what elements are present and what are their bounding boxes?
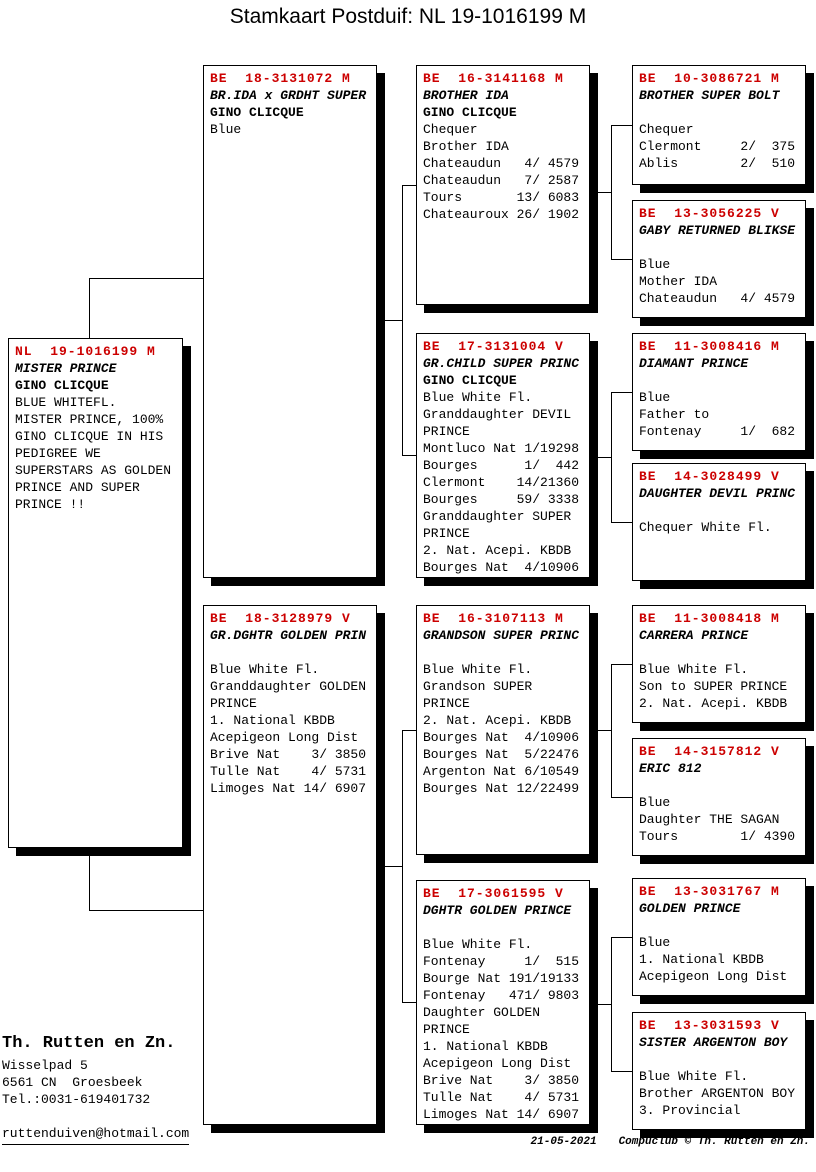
pedigree-box-grandparent[interactable]: BE 17-3061595 V DGHTR GOLDEN PRINCE Blue… bbox=[416, 880, 590, 1125]
ring-number: BE 18-3131072 M bbox=[210, 70, 370, 87]
pigeon-strain: GINO CLICQUE bbox=[423, 372, 583, 389]
ring-number: BE 11-3008416 M bbox=[639, 338, 799, 355]
pigeon-name: GOLDEN PRINCE bbox=[639, 900, 799, 917]
pedigree-box-greatgrandparent[interactable]: BE 14-3028499 V DAUGHTER DEVIL PRINC Che… bbox=[632, 463, 806, 581]
pigeon-details: Blue bbox=[210, 121, 370, 138]
connector-line bbox=[611, 797, 632, 798]
pedigree-box-grandparent[interactable]: BE 16-3141168 M BROTHER IDA GINO CLICQUE… bbox=[416, 65, 590, 305]
pedigree-box-grandparent[interactable]: BE 17-3131004 V GR.CHILD SUPER PRINC GIN… bbox=[416, 333, 590, 578]
connector-line bbox=[611, 664, 632, 665]
pedigree-box-father[interactable]: BE 18-3131072 M BR.IDA x GRDHT SUPER GIN… bbox=[203, 65, 377, 578]
pigeon-name: CARRERA PRINCE bbox=[639, 627, 799, 644]
pedigree-box-greatgrandparent[interactable]: BE 10-3086721 M BROTHER SUPER BOLT Chequ… bbox=[632, 65, 806, 185]
ring-number: BE 14-3028499 V bbox=[639, 468, 799, 485]
breeder-name: Th. Rutten en Zn. bbox=[2, 1033, 189, 1055]
connector-line bbox=[89, 278, 90, 338]
connector-line bbox=[611, 1071, 632, 1072]
pigeon-details: Blue White Fl. Grandson SUPER PRINCE 2. … bbox=[423, 661, 583, 797]
ring-number: BE 17-3131004 V bbox=[423, 338, 583, 355]
connector-line bbox=[611, 522, 632, 523]
footer: 21-05-2021 Compuclub © Th. Rutten en Zn. bbox=[531, 1136, 810, 1148]
pedigree-box-greatgrandparent[interactable]: BE 11-3008418 M CARRERA PRINCE Blue Whit… bbox=[632, 605, 806, 723]
pedigree-card: Stamkaart Postduif: NL 19-1016199 M NL 1… bbox=[0, 0, 816, 1172]
pigeon-details: Blue White Fl. Son to SUPER PRINCE 2. Na… bbox=[639, 661, 799, 712]
pigeon-name: GRANDSON SUPER PRINC bbox=[423, 627, 583, 644]
connector-line bbox=[611, 392, 632, 393]
page-title: Stamkaart Postduif: NL 19-1016199 M bbox=[0, 5, 816, 29]
pigeon-strain: GINO CLICQUE bbox=[423, 104, 583, 121]
pigeon-name: GABY RETURNED BLIKSE bbox=[639, 222, 799, 239]
connector-line bbox=[377, 320, 402, 321]
pigeon-name: DIAMANT PRINCE bbox=[639, 355, 799, 372]
pigeon-name: DAUGHTER DEVIL PRINC bbox=[639, 485, 799, 502]
ring-number: BE 13-3031593 V bbox=[639, 1017, 799, 1034]
connector-line bbox=[402, 185, 416, 186]
connector-line bbox=[611, 259, 632, 260]
pigeon-strain bbox=[639, 372, 799, 389]
pigeon-strain bbox=[639, 1051, 799, 1068]
ring-number: BE 13-3031767 M bbox=[639, 883, 799, 900]
pigeon-details: Blue Mother IDA Chateaudun 4/ 4579 bbox=[639, 256, 799, 307]
pigeon-strain bbox=[423, 644, 583, 661]
pigeon-name: GR.CHILD SUPER PRINC bbox=[423, 355, 583, 372]
ring-number: BE 18-3128979 V bbox=[210, 610, 370, 627]
print-date: 21-05-2021 bbox=[531, 1136, 597, 1148]
pigeon-name: GR.DGHTR GOLDEN PRIN bbox=[210, 627, 370, 644]
connector-line bbox=[590, 457, 611, 458]
pigeon-strain bbox=[639, 104, 799, 121]
breeder-address: Wisselpad 5 6561 CN Groesbeek Tel.:0031-… bbox=[2, 1057, 189, 1108]
pedigree-box-greatgrandparent[interactable]: BE 13-3056225 V GABY RETURNED BLIKSE Blu… bbox=[632, 200, 806, 318]
connector-line bbox=[402, 730, 416, 731]
breeder-info: Th. Rutten en Zn. Wisselpad 5 6561 CN Gr… bbox=[2, 1033, 189, 1145]
pigeon-strain bbox=[639, 777, 799, 794]
connector-line bbox=[611, 392, 612, 522]
pigeon-name: SISTER ARGENTON BOY bbox=[639, 1034, 799, 1051]
connector-line bbox=[590, 730, 611, 731]
ring-number: BE 13-3056225 V bbox=[639, 205, 799, 222]
connector-line bbox=[611, 937, 632, 938]
connector-line bbox=[590, 1004, 611, 1005]
pigeon-strain bbox=[423, 919, 583, 936]
connector-line bbox=[590, 192, 611, 193]
pigeon-details: Chequer White Fl. bbox=[639, 519, 799, 536]
connector-line bbox=[402, 1002, 416, 1003]
pigeon-details: Blue Daughter THE SAGAN Tours 1/ 4390 bbox=[639, 794, 799, 845]
software-credit: Compuclub © Th. Rutten en Zn. bbox=[619, 1136, 810, 1148]
connector-line bbox=[611, 664, 612, 797]
pedigree-box-greatgrandparent[interactable]: BE 14-3157812 V ERIC 812 Blue Daughter T… bbox=[632, 738, 806, 856]
pigeon-strain bbox=[639, 644, 799, 661]
pigeon-name: MISTER PRINCE bbox=[15, 360, 176, 377]
pedigree-box-greatgrandparent[interactable]: BE 11-3008416 M DIAMANT PRINCE Blue Fath… bbox=[632, 333, 806, 451]
pigeon-details: Blue White Fl. Granddaughter GOLDEN PRIN… bbox=[210, 661, 370, 797]
ring-number: BE 16-3107113 M bbox=[423, 610, 583, 627]
pigeon-strain bbox=[639, 502, 799, 519]
pigeon-name: DGHTR GOLDEN PRINCE bbox=[423, 902, 583, 919]
pigeon-details: Chequer Clermont 2/ 375 Ablis 2/ 510 bbox=[639, 121, 799, 172]
connector-line bbox=[611, 125, 632, 126]
connector-line bbox=[611, 937, 612, 1071]
pigeon-strain: GINO CLICQUE bbox=[15, 377, 176, 394]
pedigree-box-greatgrandparent[interactable]: BE 13-3031767 M GOLDEN PRINCE Blue 1. Na… bbox=[632, 878, 806, 996]
pigeon-details: Blue 1. National KBDB Acepigeon Long Dis… bbox=[639, 934, 799, 985]
pedigree-box-grandparent[interactable]: BE 16-3107113 M GRANDSON SUPER PRINC Blu… bbox=[416, 605, 590, 855]
connector-line bbox=[377, 866, 402, 867]
pigeon-details: BLUE WHITEFL. MISTER PRINCE, 100% GINO C… bbox=[15, 394, 176, 513]
ring-number: BE 10-3086721 M bbox=[639, 70, 799, 87]
pigeon-details: Blue White Fl. Granddaughter DEVIL PRINC… bbox=[423, 389, 583, 576]
pigeon-details: Blue Father to Fontenay 1/ 682 bbox=[639, 389, 799, 440]
connector-line bbox=[402, 185, 403, 455]
connector-line bbox=[89, 278, 203, 279]
ring-number: BE 16-3141168 M bbox=[423, 70, 583, 87]
breeder-email-link[interactable]: ruttenduiven@hotmail.com bbox=[2, 1125, 189, 1145]
connector-line bbox=[89, 910, 203, 911]
pedigree-box-greatgrandparent[interactable]: BE 13-3031593 V SISTER ARGENTON BOY Blue… bbox=[632, 1012, 806, 1130]
ring-number: NL 19-1016199 M bbox=[15, 343, 176, 360]
connector-line bbox=[611, 125, 612, 259]
ring-number: BE 14-3157812 V bbox=[639, 743, 799, 760]
pigeon-name: BROTHER IDA bbox=[423, 87, 583, 104]
pigeon-name: ERIC 812 bbox=[639, 760, 799, 777]
pigeon-name: BROTHER SUPER BOLT bbox=[639, 87, 799, 104]
pigeon-details: Chequer Brother IDA Chateaudun 4/ 4579 C… bbox=[423, 121, 583, 223]
pigeon-name: BR.IDA x GRDHT SUPER bbox=[210, 87, 370, 104]
ring-number: BE 11-3008418 M bbox=[639, 610, 799, 627]
pedigree-box-subject[interactable]: NL 19-1016199 M MISTER PRINCE GINO CLICQ… bbox=[8, 338, 183, 848]
pigeon-strain bbox=[210, 644, 370, 661]
connector-line bbox=[402, 730, 403, 1002]
pigeon-strain bbox=[639, 917, 799, 934]
pigeon-details: Blue White Fl. Brother ARGENTON BOY 3. P… bbox=[639, 1068, 799, 1119]
pedigree-box-mother[interactable]: BE 18-3128979 V GR.DGHTR GOLDEN PRIN Blu… bbox=[203, 605, 377, 1125]
pigeon-strain bbox=[639, 239, 799, 256]
pigeon-strain: GINO CLICQUE bbox=[210, 104, 370, 121]
connector-line bbox=[402, 455, 416, 456]
pigeon-details: Blue White Fl. Fontenay 1/ 515 Bourge Na… bbox=[423, 936, 583, 1123]
ring-number: BE 17-3061595 V bbox=[423, 885, 583, 902]
connector-line bbox=[89, 848, 90, 910]
